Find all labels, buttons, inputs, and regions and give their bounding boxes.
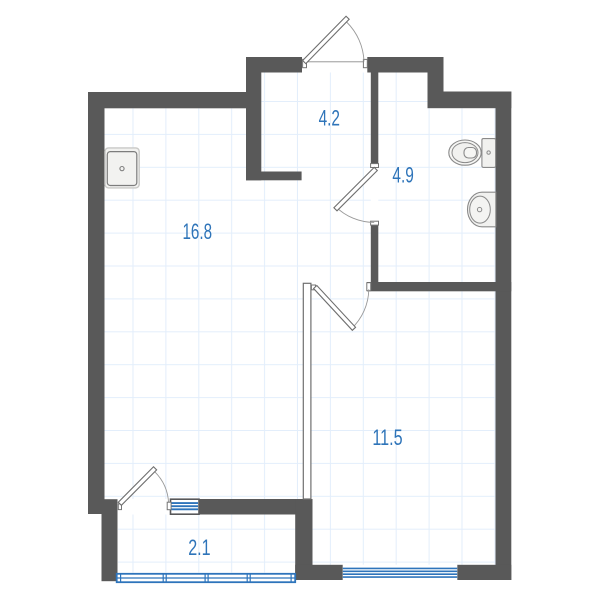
svg-text:4.2: 4.2 [319, 105, 340, 130]
svg-text:4.9: 4.9 [392, 163, 413, 188]
svg-text:2.1: 2.1 [188, 535, 210, 560]
svg-text:16.8: 16.8 [183, 219, 213, 244]
svg-text:11.5: 11.5 [372, 425, 402, 450]
